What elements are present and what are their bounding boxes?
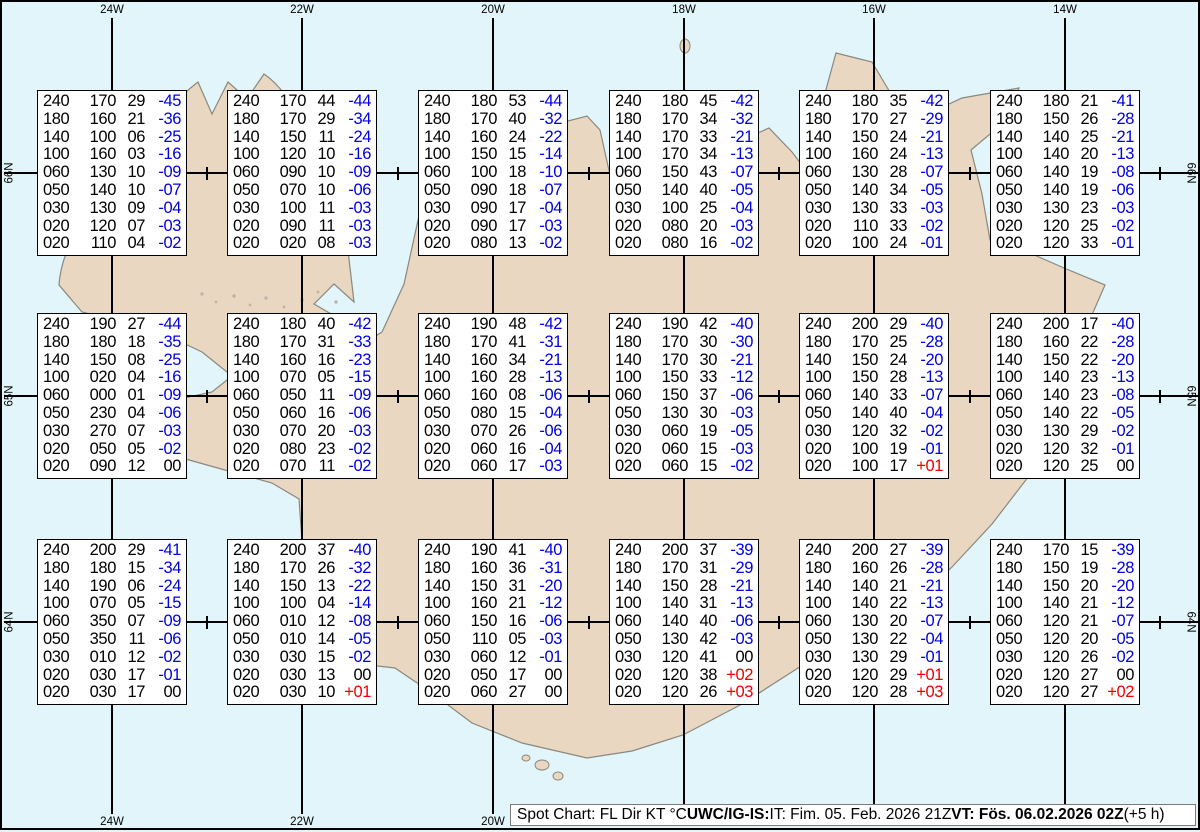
wind-speed-kt: 05 [497, 631, 526, 649]
spot-data-row: 02012029+01 [805, 667, 943, 685]
wind-direction: 150 [838, 352, 878, 370]
wind-direction: 150 [648, 578, 688, 596]
flight-level: 180 [233, 334, 266, 352]
temperature-c: -32 [526, 111, 562, 129]
flight-level: 100 [424, 369, 457, 387]
temperature-c: -06 [1098, 182, 1134, 200]
temperature-c: -20 [1098, 578, 1134, 596]
spot-data-row: 06014040-06 [615, 613, 753, 631]
flight-level: 140 [805, 129, 838, 147]
flight-level: 180 [43, 111, 76, 129]
wind-speed-kt: 29 [878, 649, 907, 667]
flight-level: 240 [996, 316, 1029, 334]
flight-level: 060 [233, 387, 266, 405]
spot-data-row: 24020037-40 [233, 542, 371, 560]
spot-data-row: 14015028-21 [615, 578, 753, 596]
wind-speed-kt: 07 [116, 218, 145, 236]
temperature-c: -44 [145, 316, 181, 334]
flight-level: 030 [233, 649, 266, 667]
temperature-c: -01 [1098, 441, 1134, 459]
temperature-c: -28 [907, 560, 943, 578]
wind-speed-kt: 04 [306, 595, 335, 613]
wind-speed-kt: 10 [306, 164, 335, 182]
temperature-c: -39 [717, 542, 753, 560]
spot-data-row: 24019048-42 [424, 316, 562, 334]
spot-data-row: 02012027+02 [996, 684, 1134, 702]
temperature-c: -34 [335, 111, 371, 129]
wind-speed-kt: 29 [306, 111, 335, 129]
wind-direction: 120 [266, 146, 306, 164]
temperature-c: -13 [526, 369, 562, 387]
wind-direction: 120 [838, 423, 878, 441]
temperature-c: -02 [1098, 649, 1134, 667]
wind-speed-kt: 05 [116, 595, 145, 613]
wind-speed-kt: 01 [116, 387, 145, 405]
wind-speed-kt: 34 [878, 182, 907, 200]
flight-level: 020 [996, 218, 1029, 236]
wind-direction: 090 [266, 218, 306, 236]
spot-data-row: 18015019-28 [996, 560, 1134, 578]
spot-data-row: 24020029-41 [43, 542, 181, 560]
wind-direction: 170 [648, 352, 688, 370]
wind-direction: 150 [1029, 352, 1069, 370]
wind-speed-kt: 31 [688, 595, 717, 613]
wind-speed-kt: 05 [116, 441, 145, 459]
longitude-label-bottom: 24W [100, 816, 124, 828]
wind-speed-kt: 27 [1069, 684, 1098, 702]
spot-box-r1c6: 24018021-4118015026-2814014025-211001402… [990, 90, 1140, 256]
flight-level: 060 [43, 164, 76, 182]
temperature-c: +01 [335, 684, 371, 702]
temperature-c: 00 [145, 458, 181, 476]
spot-data-row: 06000001-09 [43, 387, 181, 405]
temperature-c: -01 [145, 667, 181, 685]
temperature-c: -44 [335, 93, 371, 111]
temperature-c: -29 [717, 560, 753, 578]
wind-direction: 120 [1029, 631, 1069, 649]
longitude-label-top: 20W [481, 4, 505, 16]
temperature-c: -02 [907, 423, 943, 441]
flight-level: 020 [615, 667, 648, 685]
spot-data-row: 14014021-21 [805, 578, 943, 596]
temperature-c: -15 [145, 595, 181, 613]
temperature-c: -04 [526, 200, 562, 218]
wind-speed-kt: 19 [878, 441, 907, 459]
wind-speed-kt: 25 [1069, 129, 1098, 147]
grid-cross [588, 390, 590, 403]
temperature-c: -02 [335, 441, 371, 459]
temperature-c: -25 [145, 352, 181, 370]
wind-speed-kt: 29 [116, 93, 145, 111]
flight-level: 020 [805, 441, 838, 459]
temperature-c: -21 [1098, 129, 1134, 147]
temperature-c: +02 [717, 667, 753, 685]
flight-level: 030 [996, 649, 1029, 667]
wind-direction: 170 [266, 93, 306, 111]
temperature-c: -08 [335, 613, 371, 631]
wind-speed-kt: 42 [688, 631, 717, 649]
wind-speed-kt: 25 [1069, 218, 1098, 236]
grid-cross [969, 616, 971, 629]
wind-speed-kt: 20 [688, 218, 717, 236]
wind-speed-kt: 15 [688, 441, 717, 459]
wind-direction: 200 [1029, 316, 1069, 334]
wind-speed-kt: 08 [306, 235, 335, 253]
spot-data-row: 05012020-05 [996, 631, 1134, 649]
spot-data-row: 02012007-03 [43, 218, 181, 236]
temperature-c: -16 [145, 146, 181, 164]
wind-direction: 150 [266, 129, 306, 147]
wind-speed-kt: 17 [116, 684, 145, 702]
flight-level: 140 [996, 578, 1029, 596]
wind-direction: 130 [838, 631, 878, 649]
wind-speed-kt: 21 [878, 578, 907, 596]
flight-level: 140 [43, 352, 76, 370]
wind-speed-kt: 36 [497, 560, 526, 578]
temperature-c: -22 [335, 578, 371, 596]
temperature-c: 00 [1098, 667, 1134, 685]
flight-level: 020 [424, 458, 457, 476]
wind-speed-kt: 23 [1069, 387, 1098, 405]
flight-level: 020 [233, 458, 266, 476]
flight-level: 030 [615, 200, 648, 218]
wind-direction: 060 [266, 405, 306, 423]
wind-speed-kt: 44 [306, 93, 335, 111]
wind-direction: 170 [648, 129, 688, 147]
wind-direction: 070 [266, 182, 306, 200]
spot-data-row: 03006019-05 [615, 423, 753, 441]
spot-data-row: 06015037-06 [615, 387, 753, 405]
wind-direction: 130 [838, 200, 878, 218]
temperature-c: -06 [335, 405, 371, 423]
flight-level: 180 [615, 111, 648, 129]
temperature-c: -02 [145, 649, 181, 667]
spot-data-row: 05013030-03 [615, 405, 753, 423]
wind-speed-kt: 19 [1069, 164, 1098, 182]
wind-speed-kt: 28 [688, 578, 717, 596]
wind-speed-kt: 12 [116, 458, 145, 476]
wind-direction: 060 [457, 441, 497, 459]
wind-direction: 130 [76, 200, 116, 218]
wind-speed-kt: 27 [497, 684, 526, 702]
flight-level: 060 [233, 164, 266, 182]
spot-data-row: 02008013-02 [424, 235, 562, 253]
temperature-c: -02 [1098, 423, 1134, 441]
wind-direction: 120 [1029, 667, 1069, 685]
temperature-c: -04 [907, 405, 943, 423]
grid-cross [397, 390, 399, 403]
spot-data-row: 02012028+03 [805, 684, 943, 702]
spot-data-row: 02008016-02 [615, 235, 753, 253]
spot-data-row: 24019042-40 [615, 316, 753, 334]
flight-level: 140 [233, 578, 266, 596]
spot-data-row: 10015028-13 [805, 369, 943, 387]
spot-data-row: 18016036-31 [424, 560, 562, 578]
flight-level: 020 [805, 667, 838, 685]
wind-direction: 200 [838, 542, 878, 560]
temperature-c: 00 [717, 649, 753, 667]
wind-speed-kt: 20 [1069, 631, 1098, 649]
temperature-c: -05 [717, 182, 753, 200]
spot-data-row: 18018018-35 [43, 334, 181, 352]
wind-speed-kt: 20 [1069, 146, 1098, 164]
flight-level: 140 [233, 352, 266, 370]
spot-box-r3c1: 24020029-4118018015-3414019006-241000700… [37, 539, 187, 705]
grid-cross [206, 167, 208, 180]
spot-data-row: 0200301300 [233, 667, 371, 685]
flight-level: 030 [43, 649, 76, 667]
flight-level: 100 [615, 146, 648, 164]
wind-speed-kt: 15 [688, 458, 717, 476]
wind-speed-kt: 24 [878, 235, 907, 253]
wind-speed-kt: 17 [497, 667, 526, 685]
temperature-c: +03 [717, 684, 753, 702]
wind-speed-kt: 24 [878, 146, 907, 164]
wind-speed-kt: 31 [688, 560, 717, 578]
wind-direction: 190 [457, 316, 497, 334]
flight-level: 020 [43, 235, 76, 253]
wind-speed-kt: 11 [306, 387, 335, 405]
wind-direction: 160 [457, 352, 497, 370]
grid-cross [778, 616, 780, 629]
spot-data-row: 24018040-42 [233, 316, 371, 334]
wind-direction: 080 [648, 218, 688, 236]
spot-data-row: 05014040-05 [615, 182, 753, 200]
flight-level: 100 [233, 595, 266, 613]
wind-direction: 170 [266, 560, 306, 578]
temperature-c: -03 [717, 631, 753, 649]
wind-speed-kt: 17 [878, 458, 907, 476]
temperature-c: -33 [335, 334, 371, 352]
temperature-c: -42 [717, 93, 753, 111]
temperature-c: -13 [907, 369, 943, 387]
wind-speed-kt: 05 [306, 369, 335, 387]
temperature-c: -02 [145, 441, 181, 459]
flight-level: 030 [43, 423, 76, 441]
temperature-c: -34 [145, 560, 181, 578]
spot-data-row: 10010004-14 [233, 595, 371, 613]
spot-data-row: 02008023-02 [233, 441, 371, 459]
spot-data-row: 06015016-06 [424, 613, 562, 631]
temperature-c: -21 [907, 129, 943, 147]
wind-direction: 120 [648, 684, 688, 702]
temperature-c: -03 [526, 631, 562, 649]
temperature-c: 00 [145, 684, 181, 702]
temperature-c: -06 [145, 631, 181, 649]
spot-data-row: 14015031-20 [424, 578, 562, 596]
spot-data-row: 14016016-23 [233, 352, 371, 370]
temperature-c: -07 [907, 613, 943, 631]
wind-speed-kt: 22 [1069, 405, 1098, 423]
wind-speed-kt: 22 [1069, 334, 1098, 352]
wind-direction: 180 [1029, 93, 1069, 111]
wind-speed-kt: 15 [1069, 542, 1098, 560]
wind-direction: 070 [457, 423, 497, 441]
wind-speed-kt: 25 [688, 200, 717, 218]
spot-data-row: 10017034-13 [615, 146, 753, 164]
temperature-c: -04 [526, 441, 562, 459]
grid-cross [778, 167, 780, 180]
flight-level: 140 [424, 352, 457, 370]
flight-level: 240 [43, 93, 76, 111]
temperature-c: -10 [526, 164, 562, 182]
spot-data-row: 02008020-03 [615, 218, 753, 236]
wind-speed-kt: 33 [1069, 235, 1098, 253]
flight-level: 020 [996, 667, 1029, 685]
temperature-c: -04 [907, 631, 943, 649]
spot-data-row: 14015024-21 [805, 129, 943, 147]
spot-box-r2c6: 24020017-4018016022-2814015022-201001402… [990, 313, 1140, 479]
flight-level: 240 [424, 542, 457, 560]
wind-speed-kt: 41 [688, 649, 717, 667]
flight-level: 020 [233, 667, 266, 685]
wind-speed-kt: 27 [1069, 667, 1098, 685]
spot-data-row: 03003015-02 [233, 649, 371, 667]
flight-level: 030 [424, 423, 457, 441]
wind-speed-kt: 11 [306, 458, 335, 476]
flight-level: 100 [615, 595, 648, 613]
flight-level: 100 [996, 146, 1029, 164]
spot-data-row: 06014023-08 [996, 387, 1134, 405]
wind-direction: 140 [838, 405, 878, 423]
wind-direction: 170 [266, 111, 306, 129]
wind-speed-kt: 26 [688, 684, 717, 702]
wind-speed-kt: 19 [1069, 560, 1098, 578]
flight-level: 050 [996, 631, 1029, 649]
flight-level: 030 [43, 200, 76, 218]
wind-direction: 050 [76, 441, 116, 459]
wind-speed-kt: 17 [497, 200, 526, 218]
flight-level: 020 [805, 684, 838, 702]
flight-level: 140 [615, 578, 648, 596]
longitude-label-top: 22W [290, 4, 314, 16]
spot-data-row: 14010006-25 [43, 129, 181, 147]
wind-speed-kt: 41 [497, 542, 526, 560]
spot-data-row: 05013022-04 [805, 631, 943, 649]
temperature-c: -03 [717, 441, 753, 459]
spot-data-row: 02006015-03 [615, 441, 753, 459]
temperature-c: -06 [526, 387, 562, 405]
wind-speed-kt: 22 [878, 595, 907, 613]
wind-direction: 030 [266, 684, 306, 702]
temperature-c: -31 [526, 560, 562, 578]
temperature-c: -15 [335, 369, 371, 387]
latitude-label-right: 64N [1184, 611, 1196, 632]
flight-level: 060 [805, 613, 838, 631]
wind-speed-kt: 09 [116, 200, 145, 218]
wind-direction: 120 [1029, 235, 1069, 253]
flight-level: 030 [424, 200, 457, 218]
spot-data-row: 03012032-02 [805, 423, 943, 441]
wind-direction: 120 [1029, 441, 1069, 459]
spot-data-row: 18017041-31 [424, 334, 562, 352]
spot-data-row: 05035011-06 [43, 631, 181, 649]
flight-level: 240 [615, 93, 648, 111]
wind-direction: 020 [266, 235, 306, 253]
flight-level: 050 [615, 405, 648, 423]
wind-direction: 090 [457, 182, 497, 200]
grid-cross [206, 616, 208, 629]
wind-speed-kt: 37 [688, 542, 717, 560]
flight-level: 240 [615, 316, 648, 334]
spot-data-row: 05014022-05 [996, 405, 1134, 423]
flight-level: 060 [424, 164, 457, 182]
temperature-c: -14 [335, 595, 371, 613]
temperature-c: -09 [145, 164, 181, 182]
wind-direction: 200 [838, 316, 878, 334]
flight-level: 020 [43, 458, 76, 476]
wind-direction: 130 [1029, 200, 1069, 218]
spot-data-row: 14016024-22 [424, 129, 562, 147]
wind-direction: 140 [1029, 164, 1069, 182]
spot-data-row: 02010024-01 [805, 235, 943, 253]
spot-data-row: 02006017-03 [424, 458, 562, 476]
wind-speed-kt: 13 [306, 667, 335, 685]
flight-level: 020 [424, 667, 457, 685]
temperature-c: -22 [526, 129, 562, 147]
temperature-c: -21 [717, 578, 753, 596]
spot-data-row: 02003017-01 [43, 667, 181, 685]
wind-speed-kt: 10 [306, 182, 335, 200]
temperature-c: -39 [907, 542, 943, 560]
wind-direction: 070 [266, 458, 306, 476]
flight-level: 020 [996, 458, 1029, 476]
wind-speed-kt: 20 [1069, 578, 1098, 596]
spot-data-row: 24018035-42 [805, 93, 943, 111]
temperature-c: 00 [526, 684, 562, 702]
grid-cross [1159, 616, 1161, 629]
wind-direction: 160 [1029, 334, 1069, 352]
flight-level: 180 [43, 334, 76, 352]
wind-speed-kt: 40 [497, 111, 526, 129]
wind-direction: 150 [1029, 578, 1069, 596]
temperature-c: -42 [335, 316, 371, 334]
wind-direction: 160 [838, 146, 878, 164]
wind-speed-kt: 40 [878, 405, 907, 423]
spot-data-row: 14016034-21 [424, 352, 562, 370]
spot-data-row: 10012010-16 [233, 146, 371, 164]
flight-level: 020 [424, 235, 457, 253]
wind-direction: 030 [76, 684, 116, 702]
wind-direction: 010 [76, 649, 116, 667]
flight-level: 240 [805, 93, 838, 111]
wind-speed-kt: 26 [306, 560, 335, 578]
temperature-c: 00 [1098, 458, 1134, 476]
temperature-c: -09 [335, 387, 371, 405]
wind-speed-kt: 04 [116, 235, 145, 253]
spot-data-row: 02003010+01 [233, 684, 371, 702]
wind-direction: 170 [266, 334, 306, 352]
flight-level: 240 [615, 542, 648, 560]
wind-direction: 140 [1029, 369, 1069, 387]
spot-data-row: 18017031-29 [615, 560, 753, 578]
flight-level: 050 [615, 182, 648, 200]
wind-direction: 080 [648, 235, 688, 253]
spot-data-row: 05001014-05 [233, 631, 371, 649]
spot-data-row: 03013023-03 [996, 200, 1134, 218]
temperature-c: -30 [717, 334, 753, 352]
spot-data-row: 02012038+02 [615, 667, 753, 685]
flight-level: 240 [424, 316, 457, 334]
spot-data-row: 18017027-29 [805, 111, 943, 129]
temperature-c: -02 [717, 235, 753, 253]
wind-direction: 120 [838, 684, 878, 702]
flight-level: 050 [805, 182, 838, 200]
wind-direction: 120 [648, 649, 688, 667]
flight-level: 180 [805, 111, 838, 129]
spot-data-row: 05011005-03 [424, 631, 562, 649]
wind-speed-kt: 16 [497, 441, 526, 459]
